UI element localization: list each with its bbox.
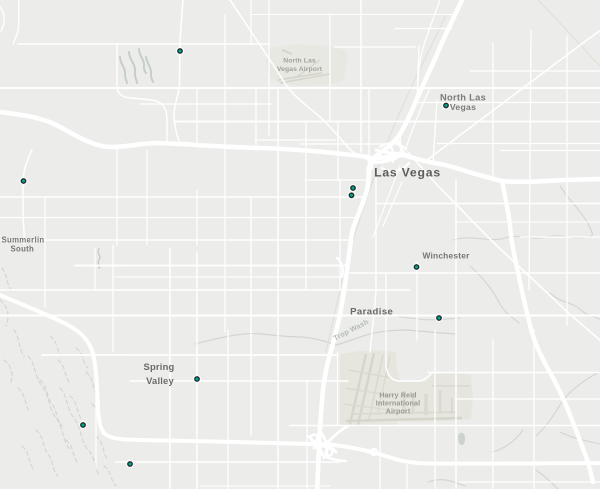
svg-text:Vegas: Vegas [450, 102, 476, 112]
svg-text:Winchester: Winchester [422, 251, 470, 261]
svg-text:Spring: Spring [144, 361, 175, 372]
svg-text:Las Vegas: Las Vegas [374, 166, 441, 180]
svg-text:Valley: Valley [146, 375, 174, 386]
svg-text:Vegas Airport: Vegas Airport [277, 66, 323, 73]
svg-text:Airport: Airport [386, 407, 411, 416]
svg-text:Paradise: Paradise [350, 307, 393, 318]
svg-text:Summerlin: Summerlin [2, 236, 45, 245]
svg-text:North Las: North Las [440, 92, 486, 102]
svg-text:North Las: North Las [283, 58, 316, 65]
svg-text:South: South [11, 245, 35, 254]
